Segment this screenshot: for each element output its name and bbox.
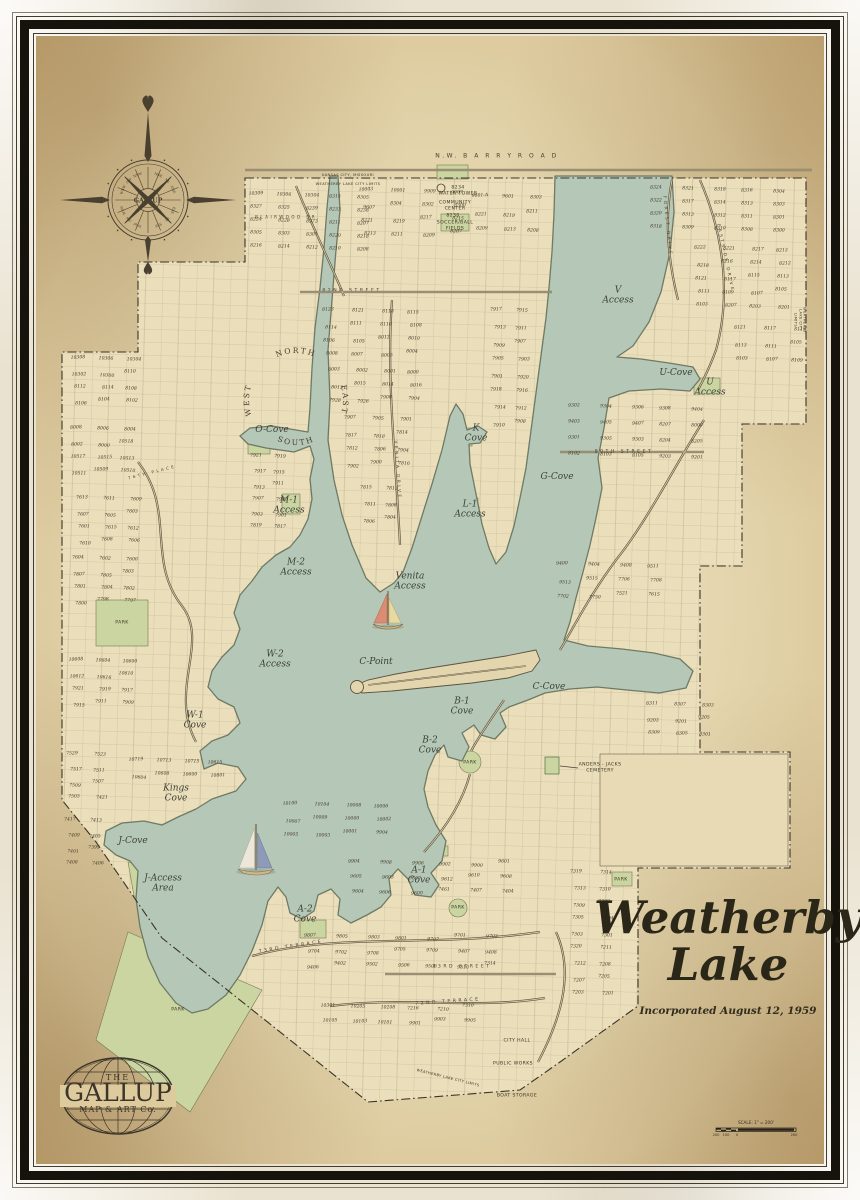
compass-dot	[164, 159, 166, 161]
scale-bar: SCALE: 1" = 200' 200 100 0 200	[713, 1120, 799, 1137]
map-title-line2: Lake	[584, 941, 860, 988]
cemetery-tract	[600, 754, 788, 866]
compass-intercardinal-label: NNE	[154, 172, 164, 179]
compass-intercardinal-label: SSE	[154, 222, 163, 229]
compass-intercardinal-label: SSW	[133, 221, 142, 228]
compass-dot	[187, 183, 189, 185]
compass-center-label: GALLUP	[134, 198, 163, 205]
scale-tick: 200	[791, 1133, 799, 1137]
compass-intercardinal-label: NNW	[133, 171, 144, 178]
scale-tick: 200	[713, 1133, 721, 1137]
compass-intercardinal-label: ENE	[170, 185, 177, 194]
scale-tick: 0	[736, 1133, 739, 1137]
compass-intercardinal-label: WSW	[119, 205, 126, 216]
compass-dot	[178, 169, 180, 171]
compass-intercardinal-label: ESE	[170, 206, 177, 215]
compass-dot	[178, 230, 180, 232]
map-sheet: GALLUP NORTH EAST SOUTH WEST NNENEENEESE…	[0, 0, 860, 1200]
compass-dot	[117, 230, 119, 232]
map-canvas: GALLUP NORTH EAST SOUTH WEST NNENEENEESE…	[36, 36, 824, 1164]
scale-tick: 100	[723, 1133, 731, 1137]
compass-dot	[131, 239, 133, 241]
compass-dot	[164, 239, 166, 241]
compass-dot	[117, 169, 119, 171]
cemetery-marker	[545, 757, 559, 774]
scale-label: SCALE: 1" = 200'	[738, 1120, 774, 1125]
logo-sub: MAP & ART Co.	[79, 1105, 156, 1114]
map-title-block: Weatherby Lake Incorporated August 12, 1…	[584, 894, 860, 1017]
compass-dot	[131, 159, 133, 161]
map-title-line1: Weatherby	[584, 894, 860, 941]
compass-dot	[187, 216, 189, 218]
map-subtitle: Incorporated August 12, 1959	[584, 1005, 860, 1017]
logo-name: GALLUP	[64, 1078, 172, 1107]
compass-dot	[107, 216, 109, 218]
compass-dot	[107, 183, 109, 185]
compass-intercardinal-label: WNW	[119, 184, 127, 195]
